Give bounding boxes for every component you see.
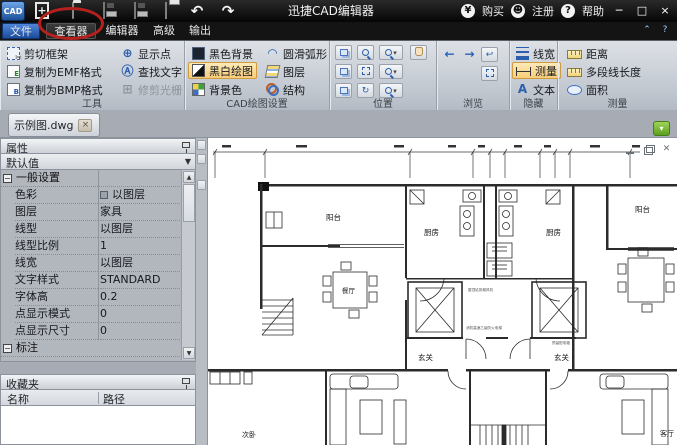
copy-emf-button[interactable]: 复制为EMF格式 <box>4 63 105 80</box>
prop-row-point-mode[interactable]: 点显示模式 0 <box>1 306 182 323</box>
maximize-button[interactable]: □ <box>634 4 650 18</box>
annotation-note1: 屋顶给排烟风机 <box>468 287 494 292</box>
tab-editor[interactable]: 编辑器 <box>100 23 144 39</box>
room-label-balcony-right: 阳台 <box>635 204 650 214</box>
title-bar: CAD + ↶ ↷ 迅捷CAD编辑器 ¥ 购买 ☻ 注册 ? 帮助 ─ □ × <box>0 0 677 22</box>
pin-icon[interactable] <box>182 142 190 148</box>
register-button[interactable]: 注册 <box>532 3 554 19</box>
pan-button[interactable] <box>410 45 427 60</box>
room-label-living-right: 客厅 <box>660 429 674 438</box>
cut-frame-icon <box>7 47 20 60</box>
floor-plan: 阳台 厨房 厨房 阳台 餐厅 玄关 玄关 次卧 客厅 屋顶给排烟风机 消防高速乙… <box>208 138 677 445</box>
group-caption-position: 位置 <box>330 95 436 110</box>
room-label-kitchen-right: 厨房 <box>546 227 561 237</box>
area-icon <box>567 85 582 95</box>
ribbon-help-icon[interactable]: ? <box>659 24 671 36</box>
black-background-icon <box>192 47 205 60</box>
minimize-button[interactable]: ─ <box>611 4 627 18</box>
tab-viewer[interactable]: 查看器 <box>46 23 96 39</box>
find-text-button[interactable]: Ⓐ 查找文字 <box>118 63 185 80</box>
group-caption-hide: 隐藏 <box>510 95 557 110</box>
left-panel: 属性 默认值 ▼ −一般设置 色彩 以图层 图层 家具 线型 以图层 <box>0 138 196 445</box>
mdi-minimize-icon[interactable] <box>624 144 637 155</box>
hide-lineweight-button[interactable]: 线宽 <box>513 45 558 62</box>
distance-button[interactable]: 距离 <box>564 45 611 62</box>
show-points-icon: ⊕ <box>121 47 134 60</box>
room-label-entry-right: 玄关 <box>554 352 569 362</box>
prop-row-color[interactable]: 色彩 以图层 <box>1 187 182 204</box>
prop-row-layer[interactable]: 图层 家具 <box>1 204 182 221</box>
properties-scrollbar[interactable]: ▲ ▼ <box>181 170 195 360</box>
folder-icon <box>72 2 74 19</box>
section-dimension[interactable]: −标注 <box>1 340 182 357</box>
canvas-side-strip <box>196 138 208 445</box>
scrollbar-thumb[interactable] <box>183 184 195 222</box>
help-button[interactable]: 帮助 <box>582 3 604 19</box>
document-close-icon[interactable]: × <box>78 119 92 132</box>
named-views-button[interactable] <box>481 66 498 81</box>
ribbon-group-measure: 距离 多段线长度 面积 测量 <box>558 41 677 111</box>
strip-button-3[interactable] <box>197 180 206 190</box>
drawing-canvas[interactable]: 阳台 厨房 厨房 阳台 餐厅 玄关 玄关 次卧 客厅 屋顶给排烟风机 消防高速乙… <box>208 138 677 445</box>
new-icon: + <box>35 2 48 19</box>
menu-tab-strip: 文件 查看器 编辑器 高级 输出 ⌃ ? <box>0 22 677 40</box>
measure-icon <box>516 67 531 76</box>
section-general-settings[interactable]: −一般设置 <box>1 170 182 187</box>
pan-hand-icon <box>415 47 423 56</box>
mdi-window-controls: ✕ <box>624 144 673 155</box>
prop-row-text-style[interactable]: 文字样式 STANDARD <box>1 272 182 289</box>
properties-grid: −一般设置 色彩 以图层 图层 家具 线型 以图层 线型比例 1 线宽 以图层 <box>0 170 196 362</box>
distance-ruler-icon <box>567 50 582 59</box>
hide-measure-button[interactable]: 测量 <box>512 62 561 79</box>
tab-advanced[interactable]: 高级 <box>148 23 180 39</box>
bw-drawing-icon <box>192 64 205 77</box>
favorites-col-name[interactable]: 名称 <box>7 391 29 407</box>
plan-annotations: 屋顶给排烟风机 消防高速乙级防火电梯 预留配电箱 <box>466 287 570 345</box>
layers-icon <box>265 65 281 78</box>
document-tab[interactable]: 示例图.dwg × <box>8 113 100 137</box>
previous-view-button[interactable]: ← <box>441 47 458 62</box>
panel-splitter[interactable] <box>0 362 196 374</box>
room-label-dining: 餐厅 <box>342 286 356 295</box>
ribbon-group-hide: 线宽 测量 A 文本 隐藏 <box>510 41 558 111</box>
group-caption-measure: 测量 <box>558 95 677 110</box>
zoom-window-icon <box>362 49 369 56</box>
buy-button[interactable]: 购买 <box>482 3 504 19</box>
mdi-restore-icon[interactable] <box>642 144 655 155</box>
arrow-left-icon: ← <box>444 47 454 61</box>
ribbon-group-cad-settings: 黑色背景 黑白绘图 背景色 ◠ 圆滑弧形 图层 结构 CAD绘图设 <box>185 41 330 111</box>
app-title: 迅捷CAD编辑器 <box>288 0 374 22</box>
room-label-kitchen-left: 厨房 <box>424 227 439 237</box>
mdi-close-icon[interactable]: ✕ <box>660 144 673 155</box>
scroll-down-icon[interactable]: ▼ <box>183 347 195 359</box>
save-as-icon <box>134 2 136 19</box>
annotation-note3: 预留配电箱 <box>552 340 570 345</box>
black-background-button[interactable]: 黑色背景 <box>189 45 256 62</box>
favorites-col-path[interactable]: 路径 <box>103 391 125 407</box>
copy-emf-icon <box>7 65 20 78</box>
group-caption-tools: 工具 <box>0 95 184 110</box>
print-icon <box>165 2 167 19</box>
zoom-window-button[interactable] <box>357 45 374 60</box>
favorites-list[interactable] <box>0 406 196 445</box>
cascade-windows-icon <box>340 49 348 56</box>
ribbon-group-browse: ← → ↩ 浏览 <box>437 41 510 111</box>
zoom-out-button[interactable] <box>379 64 403 79</box>
back-to-view-icon: ↩ <box>486 50 494 60</box>
save-button[interactable] <box>94 3 114 19</box>
lineweight-icon <box>516 47 529 60</box>
ribbon-group-position: ↻ 位置 <box>330 41 437 111</box>
strip-button-2[interactable] <box>197 154 206 164</box>
tab-file[interactable]: 文件 <box>2 23 40 39</box>
back-to-view-button[interactable]: ↩ <box>481 47 498 62</box>
prop-row-font-height[interactable]: 字体高 0.2 <box>1 289 182 306</box>
room-label-bedroom2: 次卧 <box>242 430 256 439</box>
save-as-button[interactable] <box>125 3 145 19</box>
collapse-minus-icon[interactable]: − <box>3 344 12 353</box>
smooth-arc-button[interactable]: ◠ 圆滑弧形 <box>263 45 330 62</box>
properties-preset-dropdown[interactable]: 默认值 ▼ <box>0 154 196 170</box>
print-button[interactable] <box>156 3 176 19</box>
annotation-note2: 消防高速乙级防火电梯 <box>466 325 502 330</box>
zoom-in-icon <box>385 49 392 56</box>
zoom-out-icon <box>385 68 392 75</box>
favorites-columns: 名称 路径 <box>0 390 196 406</box>
polyline-length-icon <box>567 68 582 77</box>
layers-button[interactable]: 图层 <box>263 63 308 80</box>
room-label-entry-left: 玄关 <box>418 352 433 362</box>
canvas-quick-button[interactable]: ▾ <box>653 121 670 136</box>
prop-row-point-size[interactable]: 点显示尺寸 0 <box>1 323 182 340</box>
tile-windows-button[interactable] <box>335 64 352 79</box>
smooth-arc-icon: ◠ <box>266 47 279 60</box>
fit-extents-button[interactable] <box>357 64 374 79</box>
tile-windows-icon <box>340 68 348 75</box>
redo-button[interactable]: ↷ <box>218 3 238 19</box>
cad-logo-icon[interactable]: CAD <box>1 1 25 21</box>
arrow-right-icon: → <box>464 47 474 61</box>
chevron-down-icon: ▼ <box>185 157 191 166</box>
bw-drawing-button[interactable]: 黑白绘图 <box>188 62 257 79</box>
pin-icon[interactable] <box>182 378 190 384</box>
close-button[interactable]: × <box>657 4 673 18</box>
cut-frame-button[interactable]: 剪切框架 <box>4 45 71 62</box>
tab-output[interactable]: 输出 <box>184 23 216 39</box>
properties-header: 属性 <box>0 138 196 154</box>
fit-extents-icon <box>362 67 370 75</box>
new-file-button[interactable]: + <box>32 3 52 19</box>
color-swatch <box>100 191 108 199</box>
zoom-in-button[interactable] <box>379 45 403 60</box>
ribbon-collapse-icon[interactable]: ⌃ <box>641 24 653 36</box>
find-text-icon: Ⓐ <box>121 65 134 78</box>
ribbon: 剪切框架 复制为EMF格式 复制为BMP格式 ⊕ 显示点 Ⓐ 查找文字 ⊞ 修剪… <box>0 40 677 110</box>
register-icon: ☻ <box>511 4 525 18</box>
column-divider[interactable] <box>98 392 99 404</box>
show-points-button[interactable]: ⊕ 显示点 <box>118 45 174 62</box>
undo-button[interactable]: ↶ <box>187 3 207 19</box>
scroll-up-icon[interactable]: ▲ <box>183 171 195 183</box>
save-icon <box>103 2 105 19</box>
buy-icon: ¥ <box>461 4 475 18</box>
polyline-length-button[interactable]: 多段线长度 <box>564 63 644 80</box>
room-labels: 阳台 厨房 厨房 阳台 餐厅 玄关 玄关 次卧 客厅 <box>242 204 674 439</box>
named-views-icon <box>486 69 494 77</box>
prop-row-linetype[interactable]: 线型 以图层 <box>1 221 182 238</box>
quick-access-toolbar: + ↶ ↷ <box>32 0 238 22</box>
group-caption-cad-settings: CAD绘图设置 <box>185 95 329 110</box>
view-3d-icon <box>340 87 348 94</box>
prop-row-lineweight[interactable]: 线宽 以图层 <box>1 255 182 272</box>
document-tab-bar: 示例图.dwg × ▾ <box>0 110 677 138</box>
document-tab-title: 示例图.dwg <box>14 117 73 133</box>
app-window: CAD + ↶ ↷ 迅捷CAD编辑器 ¥ 购买 ☻ 注册 ? 帮助 ─ □ × … <box>0 0 677 445</box>
dimension-text-marks <box>222 145 640 148</box>
zoom-previous-icon <box>385 87 392 94</box>
open-file-button[interactable] <box>63 3 83 19</box>
dimension-ticks <box>213 149 632 178</box>
ribbon-group-tools: 剪切框架 复制为EMF格式 复制为BMP格式 ⊕ 显示点 Ⓐ 查找文字 ⊞ 修剪… <box>0 41 185 111</box>
room-label-balcony-left: 阳台 <box>326 212 341 222</box>
next-view-button[interactable]: → <box>461 47 478 62</box>
prop-row-linetype-scale[interactable]: 线型比例 1 <box>1 238 182 255</box>
group-caption-browse: 浏览 <box>437 95 509 110</box>
help-icon: ? <box>561 4 575 18</box>
cascade-windows-button[interactable] <box>335 45 352 60</box>
favorites-header: 收藏夹 <box>0 374 196 390</box>
collapse-minus-icon[interactable]: − <box>3 174 12 183</box>
strip-button-1[interactable] <box>197 140 206 150</box>
